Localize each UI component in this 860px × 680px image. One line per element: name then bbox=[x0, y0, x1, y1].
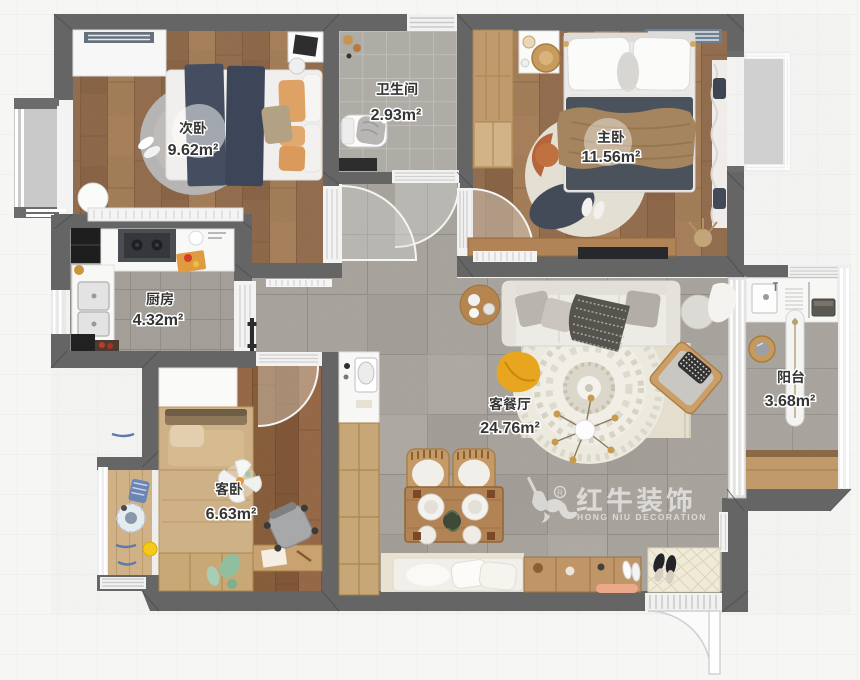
svg-text:3.68m²: 3.68m² bbox=[765, 393, 816, 410]
svg-text:HONG NIU DECORATION: HONG NIU DECORATION bbox=[577, 512, 707, 522]
svg-text:R: R bbox=[557, 489, 563, 498]
svg-text:11.56m²: 11.56m² bbox=[582, 149, 641, 166]
svg-text:4.32m²: 4.32m² bbox=[133, 312, 184, 329]
svg-text:9.62m²: 9.62m² bbox=[168, 142, 219, 159]
svg-text:2.93m²: 2.93m² bbox=[371, 107, 422, 124]
svg-text:6.63m²: 6.63m² bbox=[206, 506, 257, 523]
svg-text:24.76m²: 24.76m² bbox=[480, 420, 540, 437]
